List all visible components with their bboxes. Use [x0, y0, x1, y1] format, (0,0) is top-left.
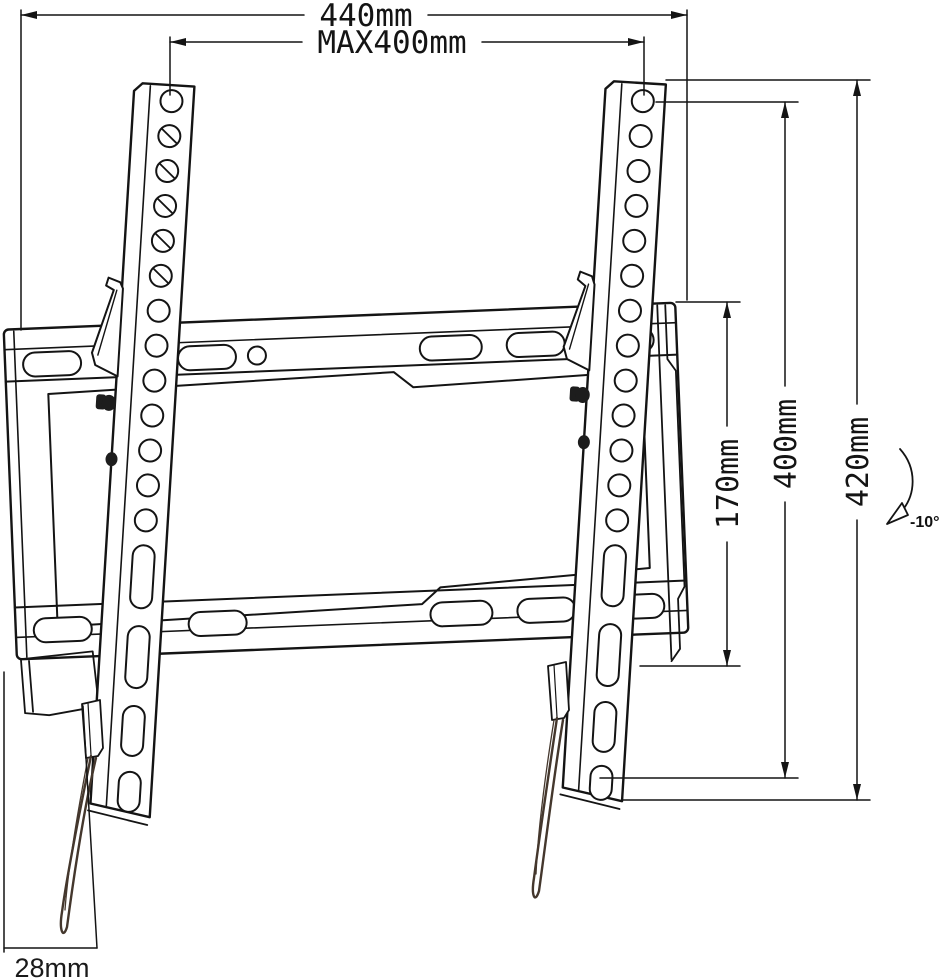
tilt-angle-label: -10° [910, 514, 939, 531]
arrow-left-icon [170, 38, 186, 46]
dim-bottom-depth-label: 28mm [14, 953, 89, 980]
dim-max-vesa-width-label: MAX400mm [317, 25, 466, 61]
dim-max-vesa-width: MAX400mm [170, 25, 644, 95]
right-pull-cord[interactable] [533, 718, 563, 897]
arrow-down-icon [853, 784, 861, 800]
dim-bracket-height-label: 420mm [841, 417, 876, 507]
arrow-right-icon [671, 11, 687, 19]
dim-wall-plate-height-label: 170mm [711, 439, 746, 529]
arrow-up-icon [723, 302, 731, 318]
arrow-left-icon [21, 11, 37, 19]
tilt-indicator: -10° [887, 449, 939, 531]
tv-mount-technical-drawing: 440mm MAX400mm 170mm [0, 0, 939, 980]
dim-vesa-height-label: 400mm [769, 399, 804, 489]
right-lock-tab [548, 662, 569, 720]
arrow-down-icon [781, 762, 789, 778]
arrow-up-icon [781, 102, 789, 118]
arrow-up-icon [853, 80, 861, 96]
arrow-down-icon [723, 650, 731, 666]
arrow-right-icon [628, 38, 644, 46]
mounting-hole [248, 346, 267, 365]
